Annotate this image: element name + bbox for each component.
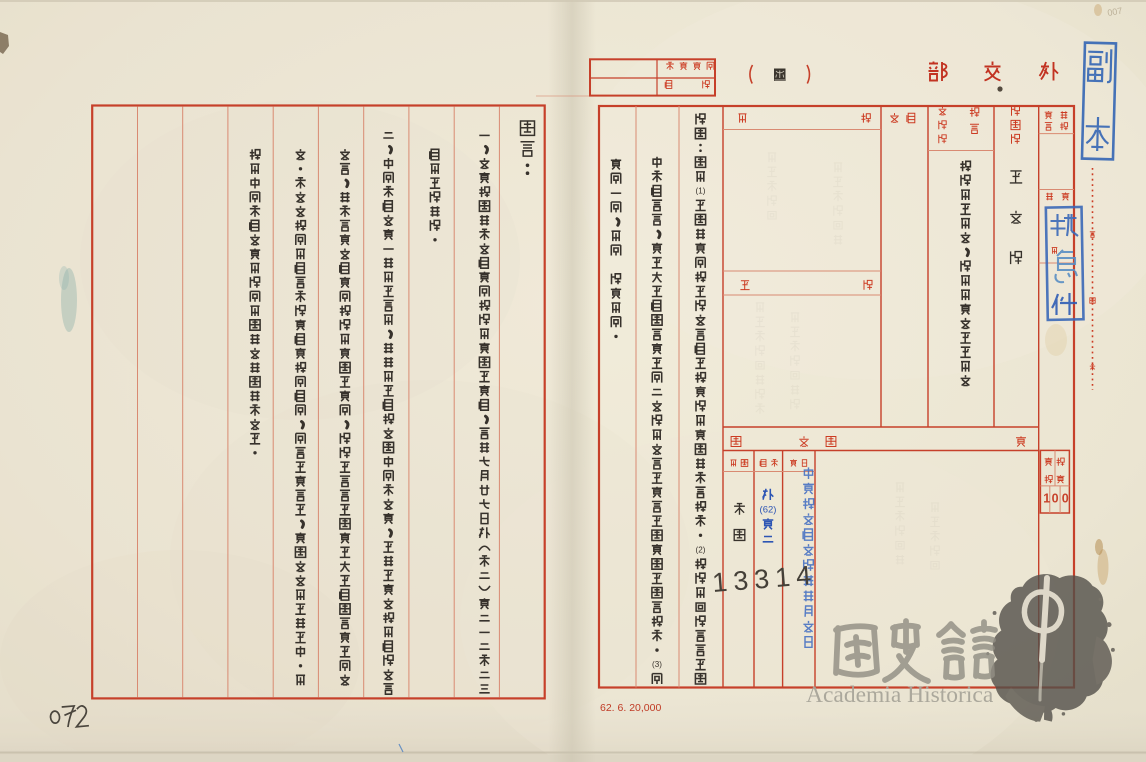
- svg-text:0: 0: [1062, 492, 1069, 506]
- svg-text:62. 6. 20,000: 62. 6. 20,000: [600, 702, 661, 714]
- svg-text:Academia Historica: Academia Historica: [806, 682, 994, 708]
- svg-text:0: 0: [1052, 492, 1059, 506]
- svg-text:(2): (2): [696, 546, 706, 555]
- svg-text:1: 1: [1043, 492, 1050, 506]
- svg-text:(3): (3): [652, 660, 662, 669]
- svg-text:(62): (62): [760, 505, 777, 516]
- svg-text:(1): (1): [696, 187, 706, 196]
